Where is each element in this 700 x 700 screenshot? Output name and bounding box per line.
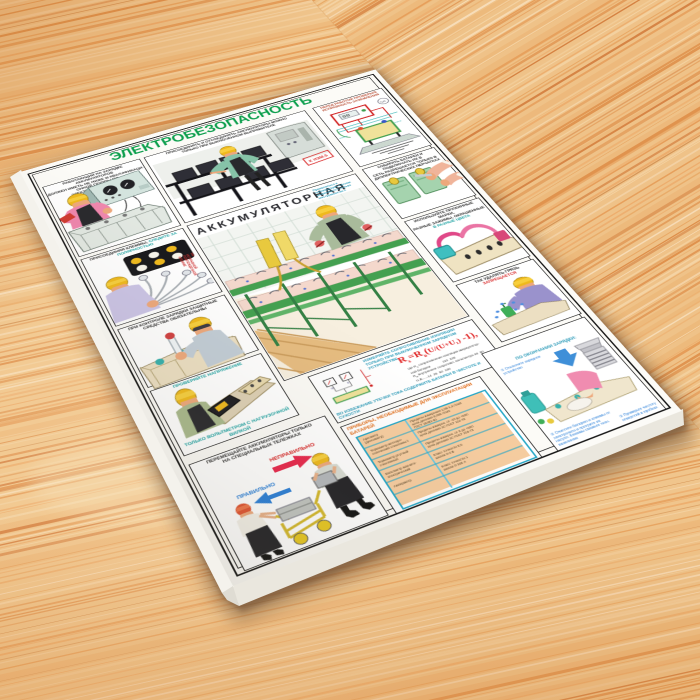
svg-text:U1: U1 [347,381,353,385]
svg-text:шина: шина [394,120,403,124]
svg-text:зажим: зажим [339,135,349,139]
svg-text:Uв: Uв [331,387,336,390]
svg-text:ТрВ: ТрВ [379,100,387,104]
